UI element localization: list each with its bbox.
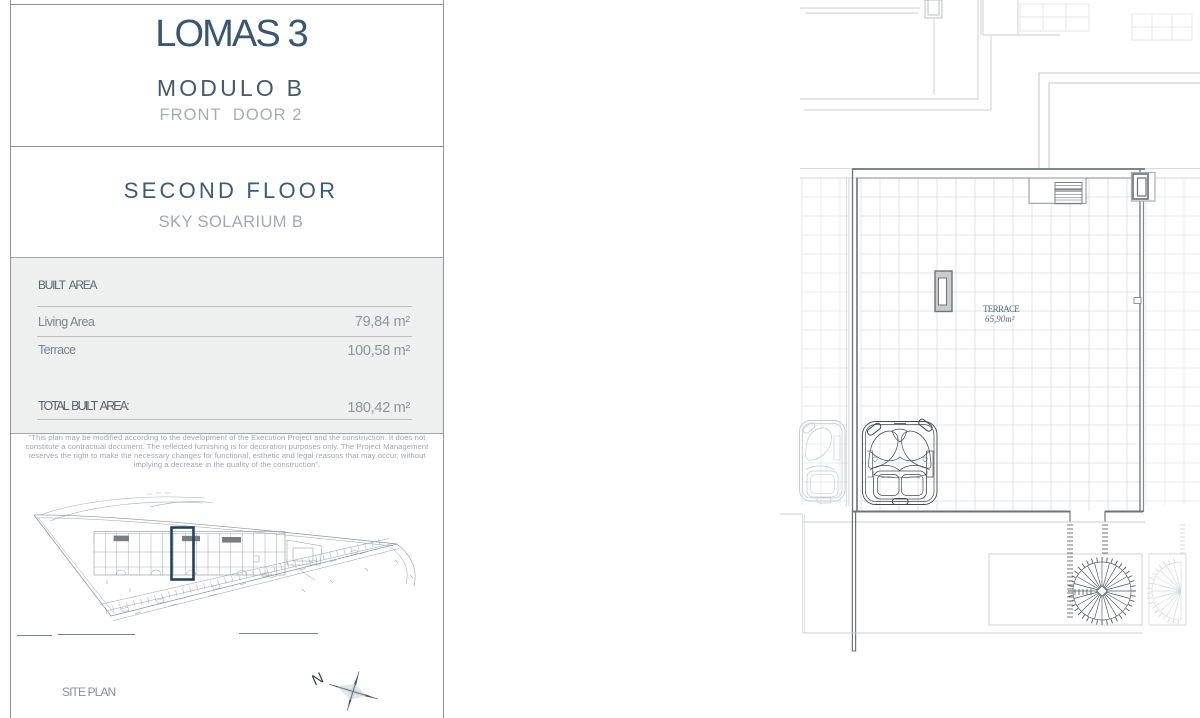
- svg-text:65,90m²: 65,90m²: [985, 314, 1015, 324]
- svg-text:TERRACE: TERRACE: [983, 304, 1020, 314]
- svg-text:N: N: [309, 669, 326, 689]
